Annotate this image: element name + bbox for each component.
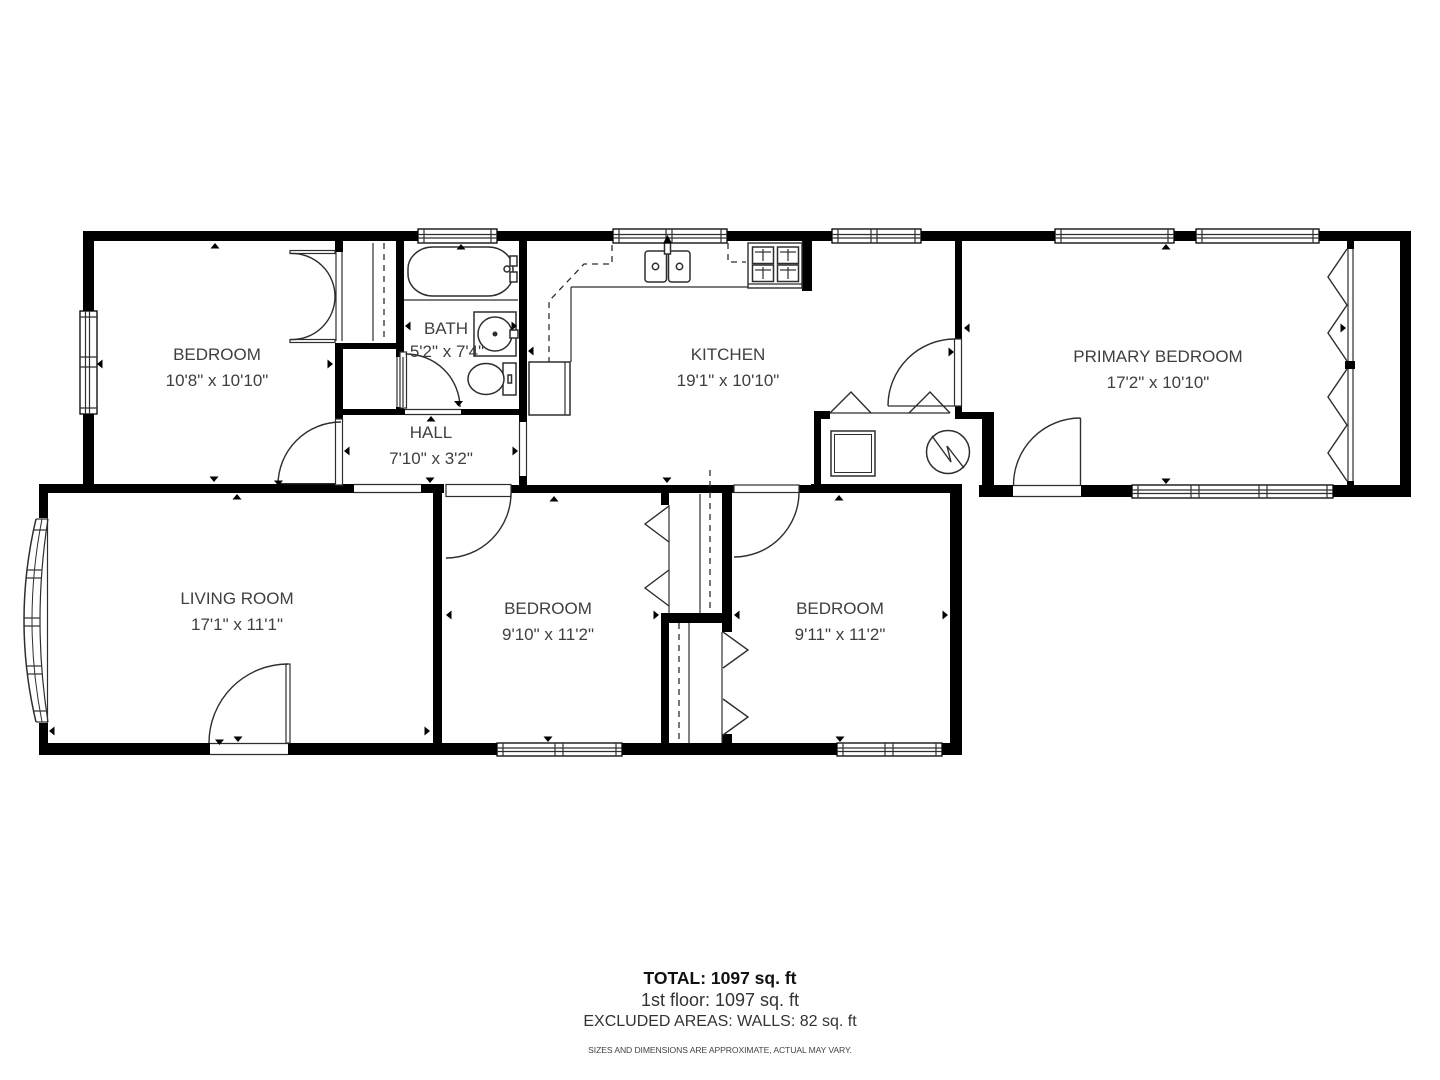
svg-text:1st floor: 1097 sq. ft: 1st floor: 1097 sq. ft xyxy=(641,990,799,1010)
svg-text:BEDROOM: BEDROOM xyxy=(173,345,261,364)
svg-text:19'1" x 10'10": 19'1" x 10'10" xyxy=(677,371,780,390)
svg-text:TOTAL: 1097 sq. ft: TOTAL: 1097 sq. ft xyxy=(644,968,797,988)
svg-text:HALL: HALL xyxy=(410,423,453,442)
svg-text:EXCLUDED AREAS: WALLS: 82 sq.: EXCLUDED AREAS: WALLS: 82 sq. ft xyxy=(583,1013,857,1030)
svg-text:BEDROOM: BEDROOM xyxy=(796,599,884,618)
svg-text:9'10" x 11'2": 9'10" x 11'2" xyxy=(502,625,594,644)
svg-text:KITCHEN: KITCHEN xyxy=(691,345,766,364)
svg-text:7'10" x 3'2": 7'10" x 3'2" xyxy=(389,449,473,468)
svg-text:17'1" x 11'1": 17'1" x 11'1" xyxy=(191,615,283,634)
svg-text:BEDROOM: BEDROOM xyxy=(504,599,592,618)
svg-text:SIZES AND DIMENSIONS ARE APPRO: SIZES AND DIMENSIONS ARE APPROXIMATE, AC… xyxy=(588,1045,852,1055)
svg-text:BATH: BATH xyxy=(424,319,468,338)
svg-text:9'11" x 11'2": 9'11" x 11'2" xyxy=(795,625,886,644)
svg-text:5'2" x 7'4": 5'2" x 7'4" xyxy=(410,342,484,361)
svg-text:10'8" x 10'10": 10'8" x 10'10" xyxy=(166,371,269,390)
svg-text:17'2" x 10'10": 17'2" x 10'10" xyxy=(1107,373,1210,392)
svg-text:PRIMARY BEDROOM: PRIMARY BEDROOM xyxy=(1073,347,1242,366)
svg-text:LIVING ROOM: LIVING ROOM xyxy=(180,589,293,608)
